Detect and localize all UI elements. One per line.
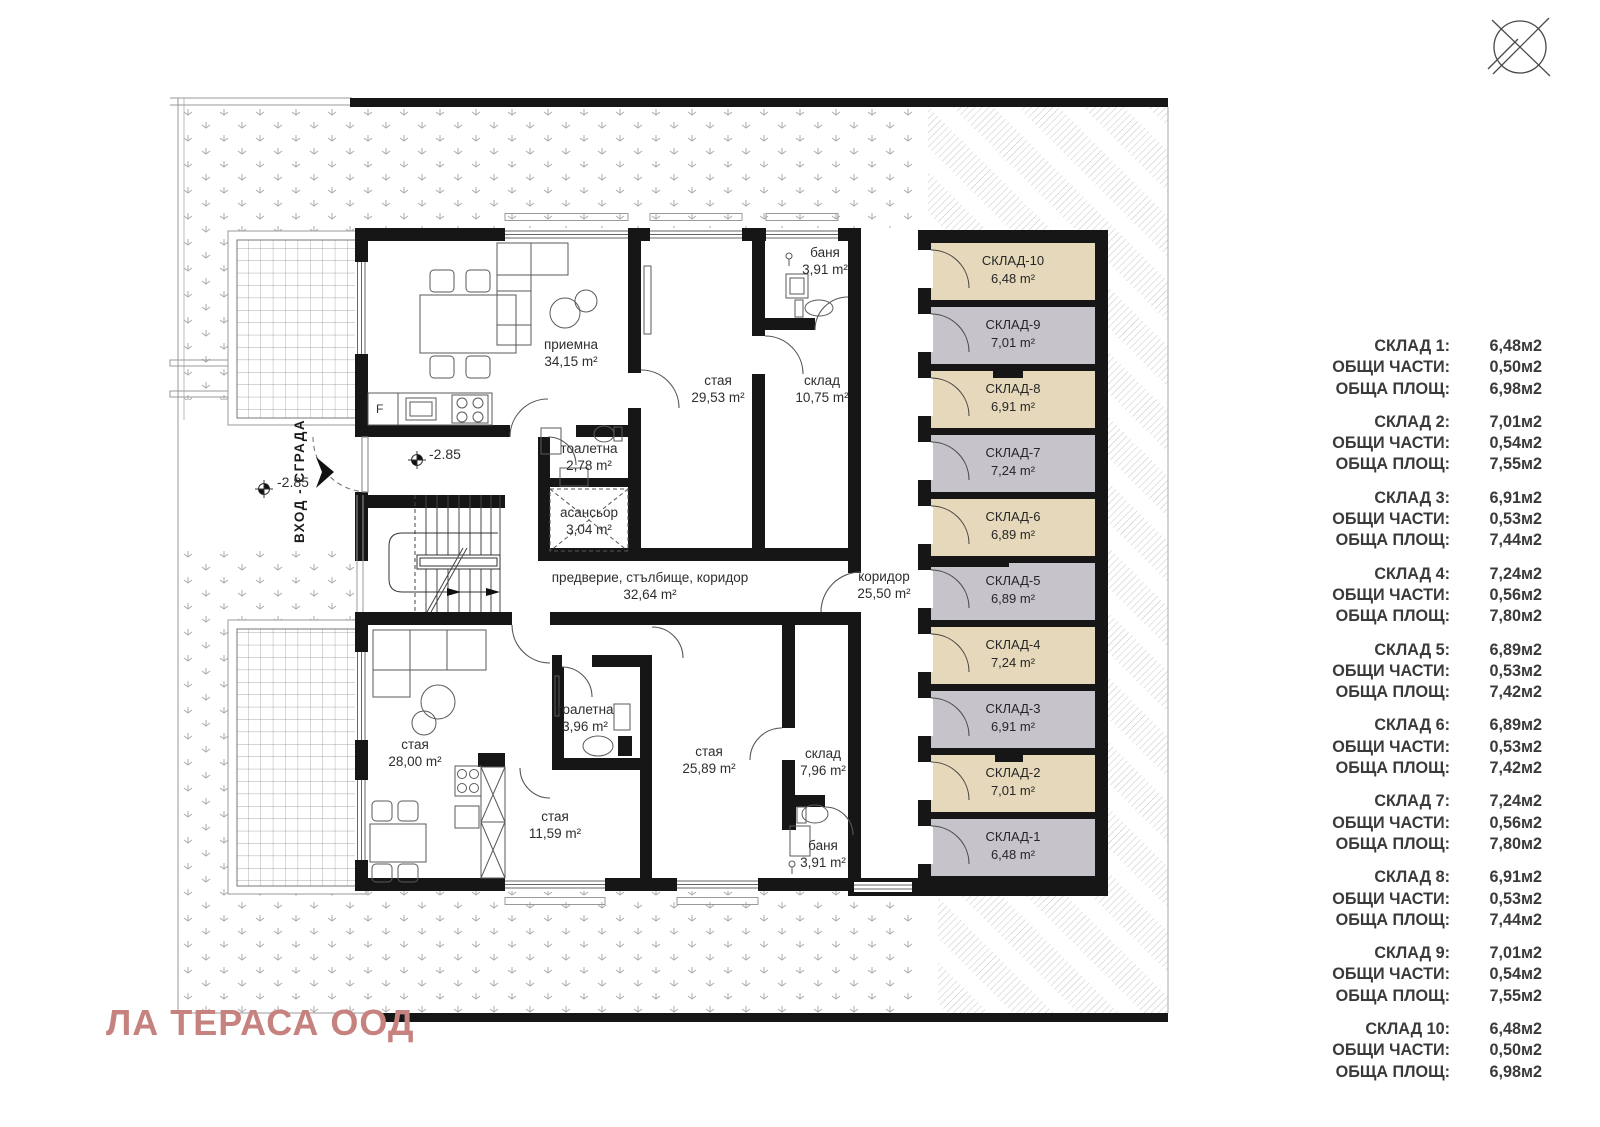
entrance-arrow — [316, 457, 334, 488]
storage-label-2: СКЛАД-27,01 m² — [986, 764, 1041, 800]
room-label-koridor: коридор25,50 m² — [857, 569, 910, 602]
storage-label-4: СКЛАД-47,24 m² — [986, 636, 1041, 672]
terrace-lower — [237, 629, 358, 886]
storage-label-5: СКЛАД-56,89 m² — [986, 572, 1041, 608]
legend-group-5: СКЛАД 5:6,89м2ОБЩИ ЧАСТИ:0,53м2ОБЩА ПЛОЩ… — [1256, 640, 1542, 704]
watermark: ЛА ТЕРАСА ООД — [106, 1002, 415, 1044]
room-label-staya-upper: стая29,53 m² — [691, 373, 744, 406]
storage-label-3: СКЛАД-36,91 m² — [986, 700, 1041, 736]
room-label-sklad-upper: склад10,75 m² — [795, 373, 848, 406]
room-label-priemna: приемна34,15 m² — [544, 337, 598, 370]
legend-group-8: СКЛАД 8:6,91м2ОБЩИ ЧАСТИ:0,53м2ОБЩА ПЛОЩ… — [1256, 867, 1542, 931]
legend-group-6: СКЛАД 6:6,89м2ОБЩИ ЧАСТИ:0,53м2ОБЩА ПЛОЩ… — [1256, 715, 1542, 779]
legend-group-3: СКЛАД 3:6,91м2ОБЩИ ЧАСТИ:0,53м2ОБЩА ПЛОЩ… — [1256, 488, 1542, 552]
legend-group-9: СКЛАД 9:7,01м2ОБЩИ ЧАСТИ:0,54м2ОБЩА ПЛОЩ… — [1256, 943, 1542, 1007]
level-mark: -2.85 — [429, 446, 461, 462]
storage-label-8: СКЛАД-86,91 m² — [986, 380, 1041, 416]
legend-group-2: СКЛАД 2:7,01м2ОБЩИ ЧАСТИ:0,54м2ОБЩА ПЛОЩ… — [1256, 412, 1542, 476]
room-label-asansior: асансьор3,04 m² — [560, 505, 618, 538]
storage-label-7: СКЛАД-77,24 m² — [986, 444, 1041, 480]
room-label-sklad-lower: склад7,96 m² — [800, 746, 846, 779]
room-label-staya-lower-left: стая28,00 m² — [388, 737, 441, 770]
storage-area-legend: СКЛАД 1:6,48м2ОБЩИ ЧАСТИ:0,50м2ОБЩА ПЛОЩ… — [1256, 336, 1542, 1095]
room-label-staya-lower-mid: стая11,59 m² — [529, 809, 581, 842]
storage-label-10: СКЛАД-106,48 m² — [982, 252, 1044, 288]
level-mark: -2.85 — [277, 474, 309, 490]
floor-plan-canvas: приемна34,15 m² стая29,53 m² склад10,75 … — [0, 0, 1600, 1127]
storage-label-6: СКЛАД-66,89 m² — [986, 508, 1041, 544]
legend-group-10: СКЛАД 10:6,48м2ОБЩИ ЧАСТИ:0,50м2ОБЩА ПЛО… — [1256, 1019, 1542, 1083]
storage-label-1: СКЛАД-16,48 m² — [986, 828, 1041, 864]
legend-group-4: СКЛАД 4:7,24м2ОБЩИ ЧАСТИ:0,56м2ОБЩА ПЛОЩ… — [1256, 564, 1542, 628]
room-label-toaletna-lower: тоалетна3,96 m² — [556, 702, 613, 735]
terrace-upper — [237, 240, 358, 418]
stairs — [389, 495, 500, 612]
legend-group-7: СКЛАД 7:7,24м2ОБЩИ ЧАСТИ:0,56м2ОБЩА ПЛОЩ… — [1256, 791, 1542, 855]
storage-label-9: СКЛАД-97,01 m² — [986, 316, 1041, 352]
room-label-banya-upper: баня3,91 m² — [802, 245, 848, 278]
compass-icon — [1488, 18, 1550, 76]
room-label-toaletna-upper: тоалетна2,78 m² — [560, 441, 617, 474]
room-label-banya-lower: баня3,91 m² — [800, 838, 846, 871]
legend-group-1: СКЛАД 1:6,48м2ОБЩИ ЧАСТИ:0,50м2ОБЩА ПЛОЩ… — [1256, 336, 1542, 400]
room-label-staya-lower-right: стая25,89 m² — [682, 744, 735, 777]
room-label-foyer: предверие, стълбище, коридор32,64 m² — [552, 570, 749, 603]
fridge-label: F — [376, 402, 383, 416]
